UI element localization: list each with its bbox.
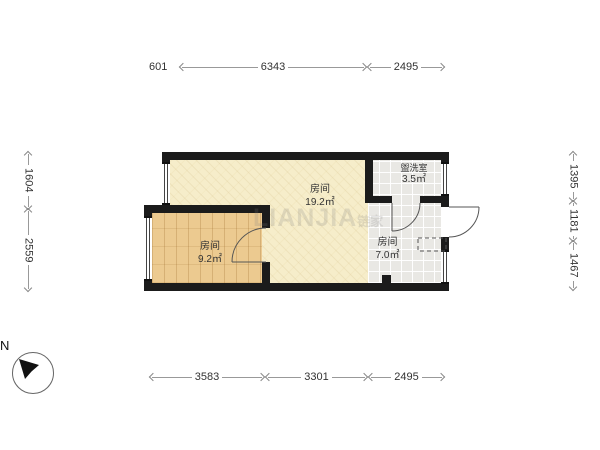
window-left-upper: [162, 162, 170, 205]
dimension-left-2559: 2559: [21, 209, 35, 291]
room-name: 房间: [355, 236, 420, 249]
room-label-right: 房间 7.0㎡: [355, 236, 420, 262]
dimension-bottom-2495: 2495: [369, 371, 444, 383]
dimension-right-1181: 1181: [566, 201, 580, 241]
door-entrance: [449, 207, 479, 237]
room-name: 盥洗室: [386, 162, 442, 174]
window-right-lower: [441, 250, 449, 284]
arrow-up-icon: [24, 151, 32, 159]
room-area: 3.5㎡: [386, 174, 442, 186]
dimension-bottom-3583: 3583: [150, 371, 264, 383]
watermark: LIANJIA链家: [253, 204, 383, 233]
wall-washroom-bottom-left: [365, 196, 392, 203]
window-left-lower: [144, 216, 152, 281]
arrow-left-icon: [179, 63, 187, 71]
arrow-down-icon: [569, 283, 577, 291]
arrow-left-icon: [149, 373, 157, 381]
wall-inner-lower: [262, 262, 270, 291]
watermark-cjk: 链家: [357, 214, 383, 229]
dimension-top-2495: 2495: [368, 61, 444, 73]
room-name: 房间: [175, 240, 245, 253]
room-label-washroom: 盥洗室 3.5㎡: [386, 162, 442, 186]
arrow-down-icon: [24, 284, 32, 292]
window-washroom: [441, 162, 449, 196]
arrow-up-icon: [569, 151, 577, 159]
arrow-right-icon: [437, 373, 445, 381]
room-area: 9.2㎡: [175, 253, 245, 266]
wall-bottom: [144, 283, 449, 291]
room-area: 7.0㎡: [355, 249, 420, 262]
wall-washroom-bottom-right: [420, 196, 449, 203]
dimension-left-1604: 1604: [21, 152, 35, 209]
dimension-right-1467: 1467: [566, 241, 580, 290]
arrow-up-icon: [24, 208, 32, 216]
arrow-left-icon: [367, 63, 375, 71]
room-name: 房间: [285, 183, 355, 196]
dimension-right-1395: 1395: [566, 152, 580, 201]
wall-stub: [382, 275, 391, 283]
wall-left-room-top: [144, 205, 270, 213]
compass-icon: [10, 350, 56, 396]
arrow-right-icon: [437, 63, 445, 71]
arrow-left-icon: [368, 373, 376, 381]
room-label-left: 房间 9.2㎡: [175, 240, 245, 266]
arrow-left-icon: [265, 373, 273, 381]
dimension-bottom-3301: 3301: [266, 371, 367, 383]
floor-plan-canvas: 601 6343 2495 1604 2559 1395 1181 1467: [0, 0, 600, 450]
dimension-top-6343: 6343: [180, 61, 366, 73]
dimension-top-601: 601: [149, 61, 167, 73]
arrow-up-icon: [569, 240, 577, 248]
wall-top: [162, 152, 449, 160]
north-label: N: [0, 338, 9, 353]
